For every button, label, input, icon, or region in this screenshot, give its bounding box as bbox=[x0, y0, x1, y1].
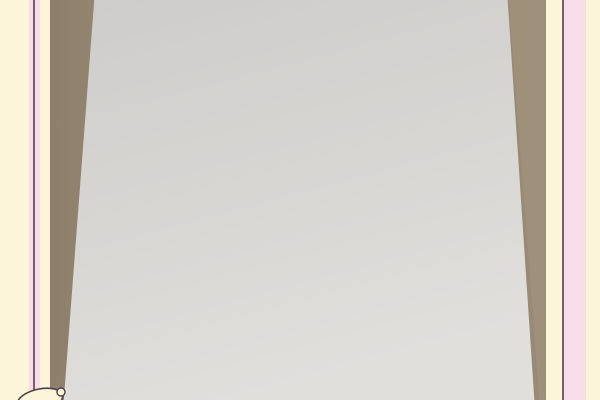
frame-right-cream-outer bbox=[586, 0, 600, 400]
photo-scene bbox=[0, 0, 600, 400]
frame-right-cream-inner bbox=[546, 0, 562, 400]
frame-left-line bbox=[33, 0, 35, 400]
floor-plan-paper bbox=[63, 0, 540, 400]
frame-right-line bbox=[562, 0, 564, 400]
framed-photo bbox=[0, 0, 600, 400]
frame-right-pink bbox=[564, 0, 586, 400]
frame-left-cream-inner bbox=[40, 0, 50, 400]
frame-left-cream-outer bbox=[0, 0, 29, 400]
